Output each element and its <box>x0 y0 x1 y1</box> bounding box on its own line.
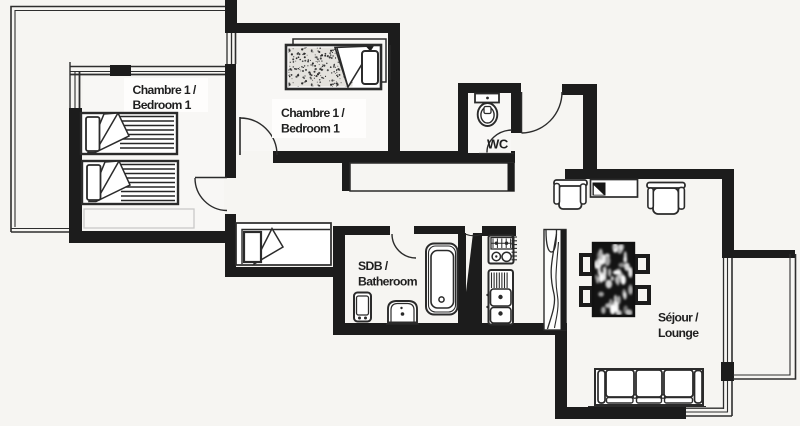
svg-text:Séjour /: Séjour / <box>658 311 699 325</box>
svg-text:WC: WC <box>487 137 509 152</box>
svg-text:Lounge: Lounge <box>658 326 699 340</box>
svg-text:Chambre 1 /: Chambre 1 / <box>133 83 197 97</box>
svg-text:Bedroom 1: Bedroom 1 <box>281 122 340 136</box>
svg-text:SDB /: SDB / <box>358 259 389 273</box>
svg-text:Batheroom: Batheroom <box>358 275 418 289</box>
svg-text:Bedroom 1: Bedroom 1 <box>133 98 192 112</box>
svg-text:Chambre 1 /: Chambre 1 / <box>281 106 345 120</box>
